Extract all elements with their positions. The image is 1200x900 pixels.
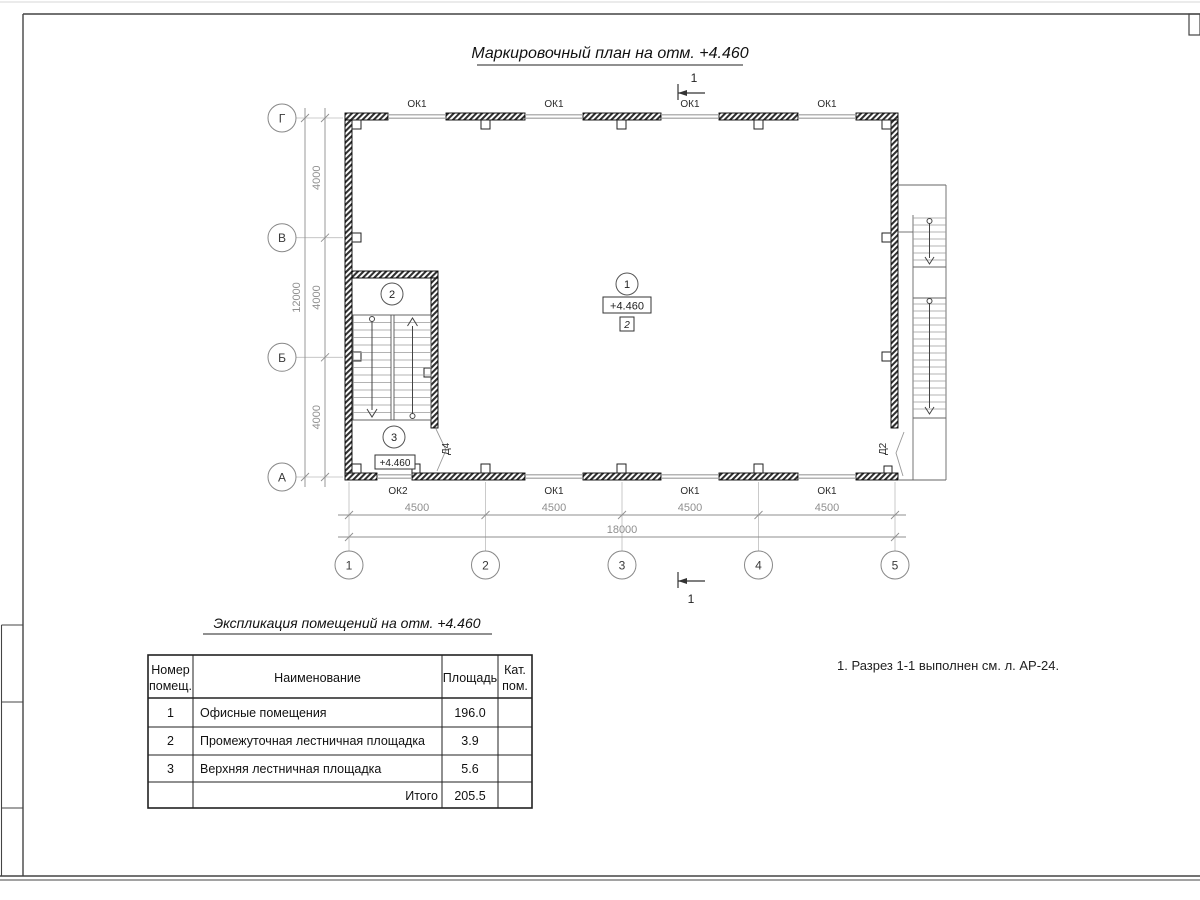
room-mark-2: 2: [389, 289, 395, 301]
section-mark-bottom: 1: [678, 572, 705, 606]
room3-elevation-mark: +4.460: [375, 455, 415, 469]
schedule-title: Экспликация помещений на отм. +4.460: [213, 615, 480, 631]
extension-lines-bottom: [349, 482, 895, 551]
floor-plan-drawing: Маркировочный план на отм. +4.460 1 1: [0, 0, 1200, 900]
dim-left-total: 12000: [291, 282, 303, 313]
external-stair-walk-lines: [925, 219, 934, 415]
schedule-header-cat-line1: Кат.: [504, 663, 526, 677]
room-marks: 1 2 3: [381, 273, 638, 448]
section-label-top: 1: [691, 71, 698, 85]
window-label: ОК1: [544, 486, 564, 497]
stairwell-right-wall: [431, 278, 438, 428]
window-label: ОК2: [388, 486, 408, 497]
dim-bottom-1: 4500: [405, 502, 429, 514]
schedule-header-area: Площадь: [443, 671, 497, 685]
stair-treads: [353, 323, 431, 413]
drawing-sheet: Маркировочный план на отм. +4.460 1 1: [0, 0, 1200, 900]
schedule-header-num-line2: помещ.: [149, 679, 192, 693]
general-note: 1. Разрез 1-1 выполнен см. л. АР-24.: [837, 658, 1059, 673]
dim-left-1: 4000: [311, 166, 323, 190]
window-label: ОК1: [544, 99, 564, 110]
stair-flight-divider: [391, 315, 394, 420]
table-row: 2 Промежуточная лестничная площадка 3.9: [167, 734, 479, 748]
schedule-header-num-line1: Номер: [151, 663, 190, 677]
stairwell-top-wall: [352, 271, 438, 278]
axis-number-3: 3: [619, 559, 626, 573]
row-num: 3: [167, 762, 174, 776]
room-mark-1: 1: [624, 279, 630, 291]
row-area: 3.9: [461, 734, 478, 748]
axis-letter-a: А: [278, 471, 286, 485]
axis-number-1: 1: [346, 559, 353, 573]
axis-letter-v: В: [278, 231, 286, 245]
plan-title-text: Маркировочный план на отм. +4.460: [471, 45, 748, 62]
schedule-header: Номер помещ. Наименование Площадь Кат. п…: [149, 663, 528, 693]
door-label-d2: Д2: [878, 442, 889, 455]
section-label-bottom: 1: [688, 592, 695, 606]
dim-left-3: 4000: [311, 405, 323, 429]
dim-bottom-3: 4500: [678, 502, 702, 514]
dim-bottom-2: 4500: [542, 502, 566, 514]
table-row: 3 Верхняя лестничная площадка 5.6: [167, 762, 479, 776]
dim-bottom-total: 18000: [607, 524, 638, 536]
room-schedule: Экспликация помещений на отм. +4.460 Ном…: [148, 615, 532, 808]
axis-letter-g: Г: [279, 112, 286, 126]
elevation-mark: +4.460 2: [603, 297, 651, 331]
room3-elevation-value: +4.460: [380, 458, 411, 469]
room-mark-3: 3: [391, 432, 397, 444]
row-area: 5.6: [461, 762, 478, 776]
dim-left-2: 4000: [311, 285, 323, 309]
row-num: 2: [167, 734, 174, 748]
table-total-row: Итого 205.5: [405, 789, 485, 803]
door-label-d4: Д4: [441, 442, 452, 455]
finish-type-mark: 2: [623, 320, 630, 331]
row-name: Промежуточная лестничная площадка: [200, 734, 425, 748]
stairwell: [353, 315, 431, 420]
row-num: 1: [167, 706, 174, 720]
sheet-frame: [0, 2, 1200, 880]
total-value: 205.5: [454, 789, 485, 803]
door-d4: Д4: [436, 429, 452, 471]
plan-title: Маркировочный план на отм. +4.460: [471, 45, 748, 65]
axis-number-4: 4: [755, 559, 762, 573]
window-label: ОК1: [407, 99, 427, 110]
total-label: Итого: [405, 789, 438, 803]
table-row: 1 Офисные помещения 196.0: [167, 706, 486, 720]
axis-circles-bottom: 1 2 3 4 5: [335, 551, 909, 579]
window-label: ОК1: [817, 99, 837, 110]
window-label: ОК1: [680, 99, 700, 110]
dim-bottom-4: 4500: [815, 502, 839, 514]
window-label: ОК1: [817, 486, 837, 497]
row-name: Офисные помещения: [200, 706, 327, 720]
schedule-header-cat-line2: пом.: [502, 679, 528, 693]
section-mark-top: 1: [678, 71, 705, 100]
axis-number-5: 5: [892, 559, 899, 573]
row-area: 196.0: [454, 706, 485, 720]
left-margin-boxes: [2, 625, 24, 876]
external-stair: [898, 185, 946, 480]
dimensions-left: 4000 4000 4000 12000: [291, 108, 343, 487]
axis-number-2: 2: [482, 559, 489, 573]
window-label: ОК1: [680, 486, 700, 497]
schedule-header-name: Наименование: [274, 671, 361, 685]
row-name: Верхняя лестничная площадка: [200, 762, 381, 776]
elevation-value: +4.460: [610, 301, 644, 313]
axis-letter-b: Б: [278, 351, 286, 365]
